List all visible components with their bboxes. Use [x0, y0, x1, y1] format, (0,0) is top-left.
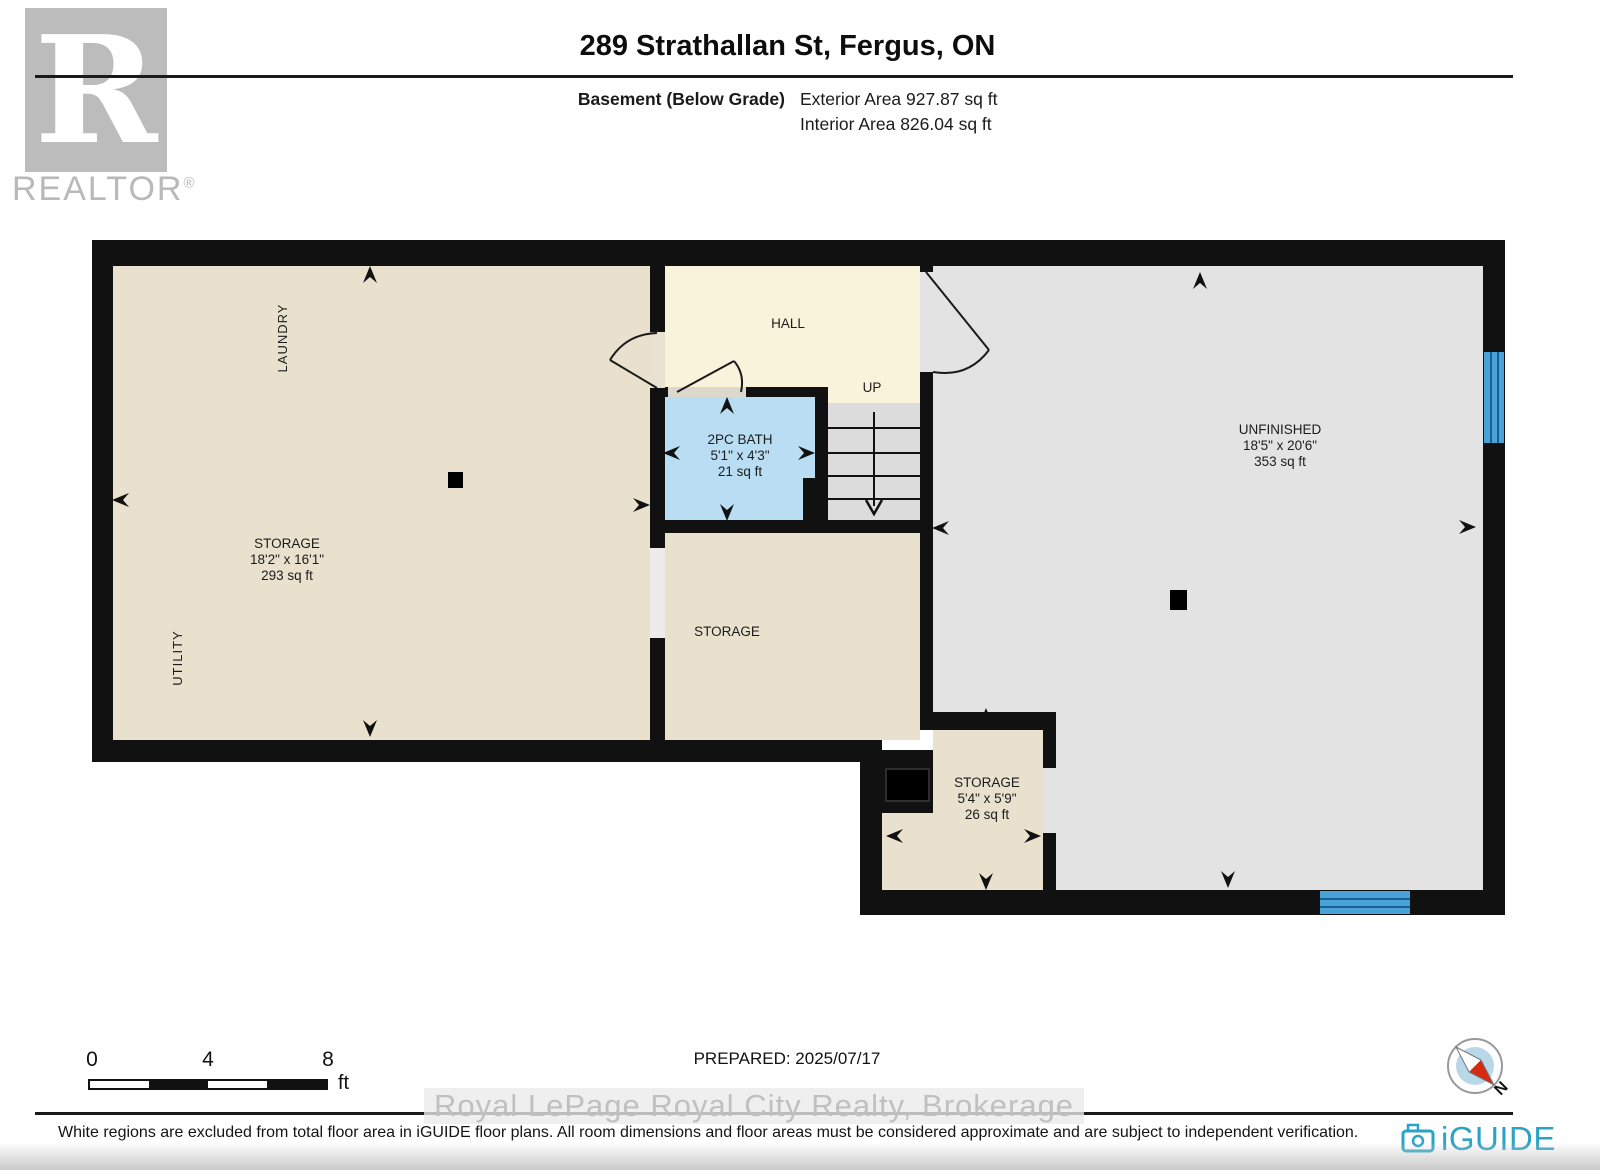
exterior-area: Exterior Area 927.87 sq ft: [800, 89, 997, 110]
label-up: UP: [863, 380, 882, 396]
brokerage-watermark: Royal LePage Royal City Realty, Brokerag…: [424, 1088, 1084, 1124]
dims-bath: 5'1" x 4'3": [710, 448, 769, 463]
label-bath: 2PC BATH 5'1" x 4'3" 21 sq ft: [707, 432, 772, 480]
label-utility: UTILITY: [170, 630, 186, 685]
floorplan-page: R REALTOR® 289 Strathallan St, Fergus, O…: [0, 0, 1600, 1170]
door-opening-storage-small: [1043, 768, 1056, 833]
dims-storage-small: 5'4" x 5'9": [957, 791, 1016, 806]
wall: [650, 520, 933, 533]
wall: [860, 750, 882, 913]
door-opening-laundry: [650, 332, 665, 388]
scale-bar: [88, 1079, 328, 1090]
disclaimer-text: White regions are excluded from total fl…: [58, 1124, 1358, 1142]
dims-storage-left: 18'2" x 16'1": [250, 552, 324, 567]
label-storage-left: STORAGE 18'2" x 16'1" 293 sq ft: [250, 536, 324, 584]
label-hall: HALL: [771, 316, 805, 332]
post-icon: [1170, 590, 1187, 610]
scale-tick-0: 0: [72, 1048, 112, 1072]
stairs-area: [828, 403, 920, 520]
wall: [920, 712, 1056, 730]
stair-tread: [828, 427, 920, 429]
scale-unit: ft: [338, 1072, 349, 1095]
bottom-gradient: [0, 1142, 1600, 1170]
realtor-wordmark: REALTOR®: [12, 170, 197, 209]
label-storage-small: STORAGE 5'4" x 5'9" 26 sq ft: [954, 775, 1020, 823]
door-opening-unfinished: [920, 272, 933, 372]
page-title: 289 Strathallan St, Fergus, ON: [65, 30, 1510, 63]
window-icon: [1320, 891, 1410, 914]
wall: [815, 387, 828, 533]
room-storage-small-ext: [882, 813, 933, 890]
wall: [92, 740, 882, 762]
compass-north-label: N: [1489, 1077, 1510, 1098]
chimney-icon: [885, 768, 930, 802]
label-storage-mid: STORAGE: [694, 624, 760, 640]
room-hall: [665, 266, 920, 403]
prepared-date: PREPARED: 2025/07/17: [587, 1049, 987, 1069]
door-opening-bath: [668, 387, 746, 397]
floor-label: Basement (Below Grade): [578, 89, 785, 110]
area-storage-left: 293 sq ft: [261, 568, 313, 583]
scale-tick-4: 4: [188, 1048, 228, 1072]
room-laundry-storage-utility: [113, 266, 650, 740]
area-bath: 21 sq ft: [718, 464, 762, 479]
post-icon: [448, 472, 463, 488]
wall: [1043, 712, 1056, 768]
label-unfinished: UNFINISHED 18'5" x 20'6" 353 sq ft: [1239, 422, 1322, 470]
wall: [92, 240, 113, 762]
header-divider: [35, 75, 1513, 78]
wall-opening: [650, 548, 665, 638]
area-storage-small: 26 sq ft: [965, 807, 1009, 822]
wall: [1483, 240, 1505, 915]
wall: [92, 240, 1505, 266]
registered-mark: ®: [183, 175, 196, 192]
area-unfinished: 353 sq ft: [1254, 454, 1306, 469]
wall: [650, 266, 665, 332]
interior-area: Interior Area 826.04 sq ft: [800, 114, 992, 135]
stair-tread: [828, 475, 920, 477]
window-icon: [1484, 352, 1504, 443]
label-laundry: LAUNDRY: [275, 304, 291, 373]
wall: [920, 372, 933, 730]
wall: [650, 638, 665, 762]
stair-tread: [828, 452, 920, 454]
dims-unfinished: 18'5" x 20'6": [1243, 438, 1317, 453]
scale-tick-8: 8: [308, 1048, 348, 1072]
stair-tread: [828, 498, 920, 500]
